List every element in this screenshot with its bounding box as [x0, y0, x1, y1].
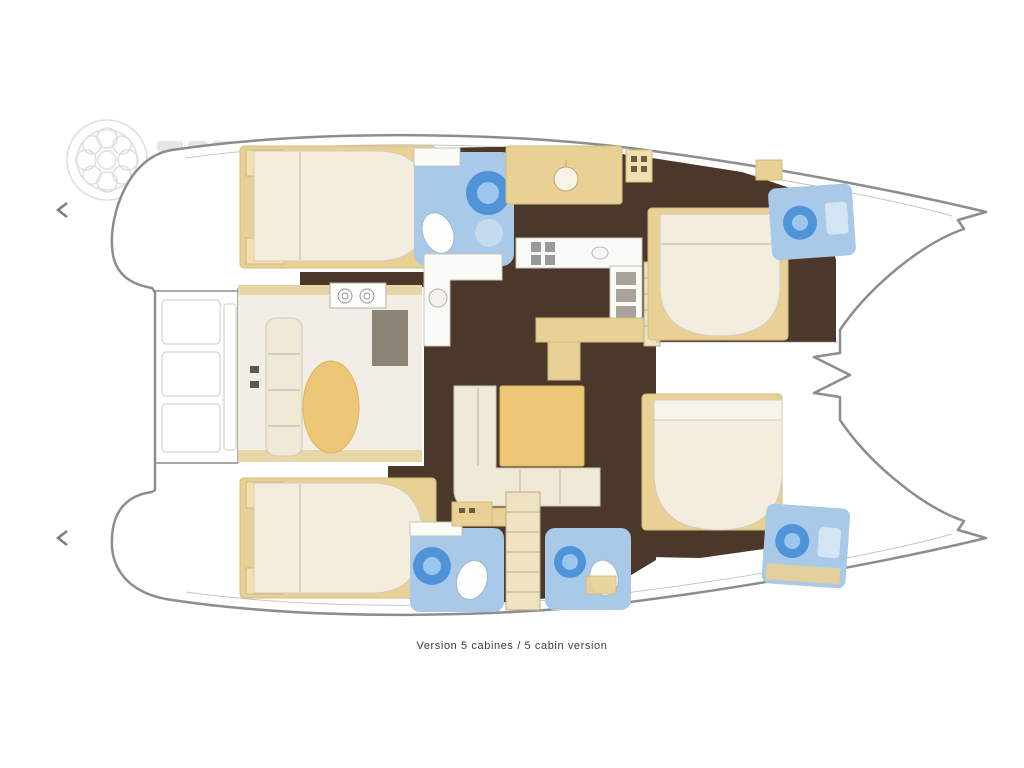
sink-icon: [554, 167, 578, 191]
port-forward-cabin: [648, 208, 788, 340]
galley-bar: [536, 318, 648, 342]
starboard-forward-cabin: [642, 394, 782, 530]
left-chevron-icon: [58, 203, 67, 545]
double-bed: [660, 214, 780, 336]
double-bed: [254, 151, 429, 261]
starboard-forward-bathroom: [761, 503, 850, 589]
catamaran-floor-plan: [0, 0, 1024, 768]
lounge-sofa: [266, 318, 302, 456]
saloon-table: [500, 386, 584, 466]
double-bed: [254, 483, 423, 593]
port-aft-bathroom: [414, 148, 514, 266]
floor-plan-page: Version 5 cabines / 5 cabin version: [0, 0, 1024, 768]
port-aft-cabin: [240, 146, 436, 268]
double-bed: [654, 420, 782, 530]
port-mid-lounge: [238, 283, 422, 462]
stool: [429, 289, 447, 307]
port-forward-bathroom: [768, 183, 857, 261]
plan-caption: Version 5 cabines / 5 cabin version: [0, 640, 1024, 652]
ottoman-table: [303, 361, 359, 453]
mid-bathroom: [545, 528, 631, 610]
oven-fridge: [616, 272, 636, 319]
vanity-desk: [372, 310, 408, 366]
starboard-aft-cabin: [240, 478, 436, 598]
